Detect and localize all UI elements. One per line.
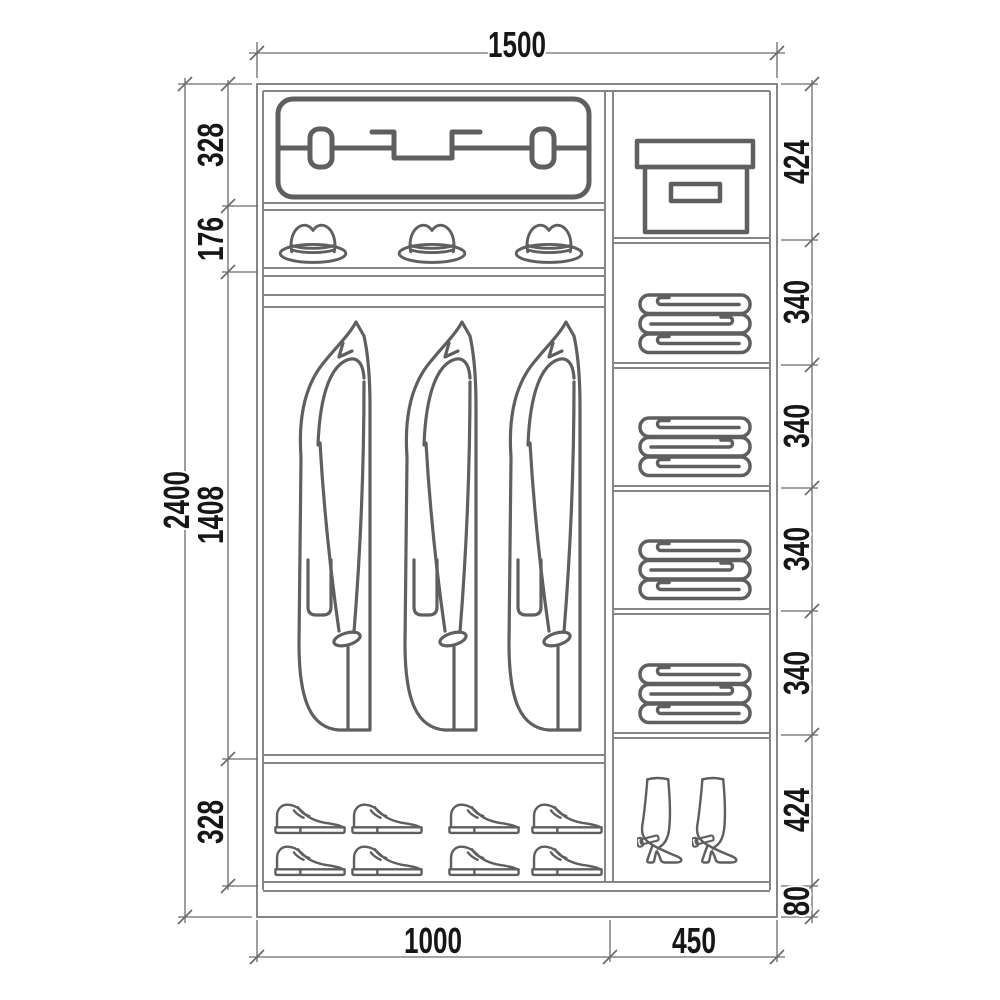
suitcase-icon: [278, 99, 589, 197]
shoe-icon: [352, 847, 421, 875]
dim-total-width: 1500: [488, 24, 546, 65]
shoe-icon: [352, 805, 421, 833]
shoe-icon: [275, 847, 344, 875]
dim-right-0: 424: [776, 140, 817, 184]
shoe-icon: [275, 805, 344, 833]
dim-right-1: 340: [776, 280, 817, 324]
hat-icon: [516, 225, 582, 262]
folded-linen-icon: [640, 295, 750, 353]
dim-right-3: 340: [776, 527, 817, 571]
dim-left-2: 1408: [190, 486, 231, 544]
shoe-icon: [532, 805, 601, 833]
dimension-labels: 1500 2400 328 176 1408 328 424 340 340 3…: [156, 24, 817, 961]
shoe-shelf-row-1: [275, 805, 601, 833]
shoe-icon: [449, 805, 518, 833]
dimension-lines: [178, 42, 818, 962]
dim-right-4: 340: [776, 651, 817, 695]
boot-icon: [636, 778, 681, 863]
diagram-canvas: 1500 2400 328 176 1408 328 424 340 340 3…: [0, 0, 1000, 1000]
dim-left-0: 328: [190, 123, 231, 167]
coat-icon: [405, 322, 476, 730]
coat-icon: [509, 322, 580, 730]
dim-bottom-0: 1000: [404, 920, 462, 961]
wardrobe-dimension-diagram: 1500 2400 328 176 1408 328 424 340 340 3…: [0, 0, 1000, 1000]
cabinet-frame: [257, 84, 777, 917]
left-column-shelves: [263, 203, 605, 763]
folded-linen-icon: [640, 665, 750, 723]
folded-linen-icon: [640, 541, 750, 599]
storage-box-icon: [637, 141, 753, 232]
shoe-icon: [532, 847, 601, 875]
dim-right-5: 424: [776, 788, 817, 832]
right-column-contents: [636, 141, 753, 863]
boot-icon: [691, 778, 736, 863]
dim-bottom-1: 450: [672, 920, 716, 961]
dim-left-1: 176: [190, 217, 231, 261]
shoe-shelf-row-2: [275, 847, 601, 875]
left-column-contents: [275, 99, 601, 875]
dim-right-2: 340: [776, 404, 817, 448]
hat-icon: [399, 225, 465, 262]
hat-icon: [280, 225, 346, 262]
coat-icon: [299, 322, 370, 730]
dim-right-6: 80: [776, 886, 817, 916]
folded-linen-icon: [640, 418, 750, 476]
shoe-icon: [449, 847, 518, 875]
dim-left-3: 328: [190, 800, 231, 844]
